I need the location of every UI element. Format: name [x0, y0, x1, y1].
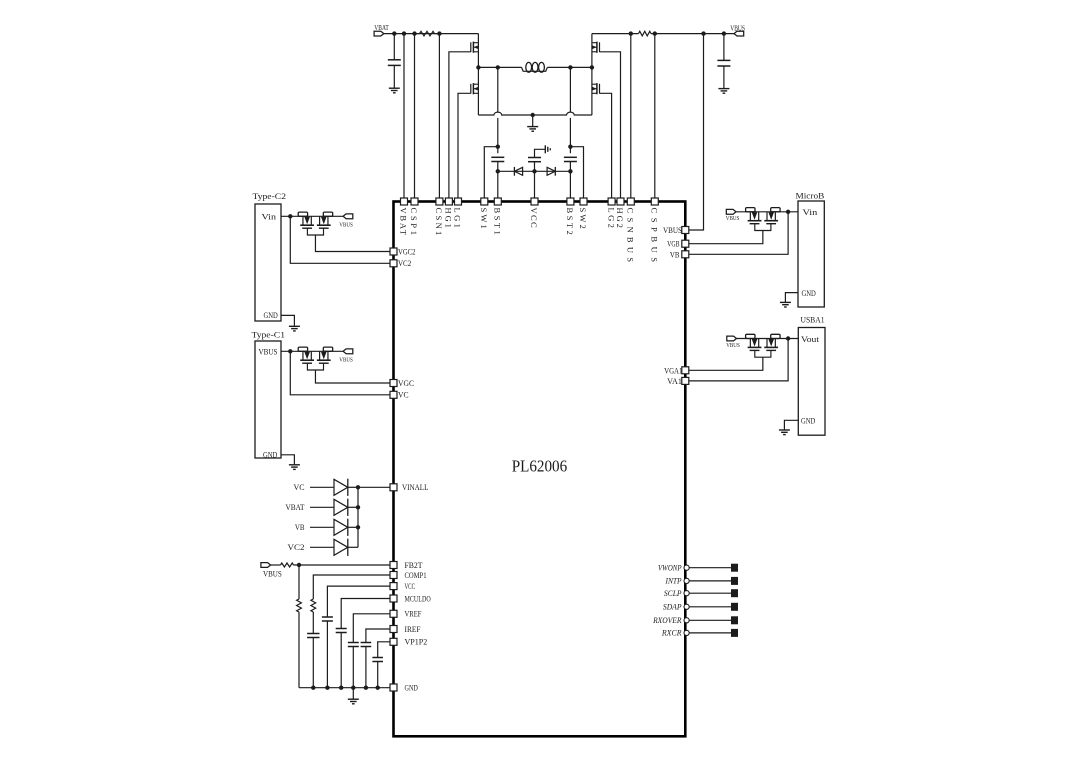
svg-text:VBAT: VBAT	[286, 503, 305, 512]
svg-text:IREF: IREF	[405, 625, 422, 634]
svg-text:VBUS: VBUS	[730, 24, 745, 32]
svg-text:Vin: Vin	[262, 211, 277, 221]
svg-text:VINALL: VINALL	[402, 483, 429, 492]
svg-text:MicroB: MicroB	[796, 190, 825, 200]
svg-text:SW1: SW1	[479, 208, 489, 229]
svg-text:HG1: HG1	[444, 208, 454, 228]
svg-text:VCC: VCC	[529, 208, 539, 229]
svg-text:VBUS: VBUS	[339, 222, 353, 229]
svg-text:VBAT: VBAT	[374, 24, 389, 32]
svg-text:VWONP: VWONP	[658, 563, 682, 572]
svg-text:Type-C1: Type-C1	[252, 330, 286, 340]
svg-text:VCC: VCC	[405, 582, 416, 591]
svg-text:FB2T: FB2T	[405, 561, 423, 570]
svg-text:INTP: INTP	[665, 577, 682, 586]
svg-text:USBA1: USBA1	[801, 314, 825, 324]
svg-text:RXCR: RXCR	[661, 629, 682, 638]
svg-text:VGA1: VGA1	[664, 366, 682, 375]
svg-text:GND: GND	[263, 450, 277, 460]
svg-text:Vout: Vout	[801, 334, 820, 344]
svg-text:VC: VC	[398, 391, 409, 400]
svg-text:VBUS: VBUS	[263, 569, 282, 578]
svg-text:HG2: HG2	[615, 208, 625, 228]
svg-text:VB: VB	[295, 523, 305, 532]
svg-text:VC2: VC2	[398, 259, 411, 268]
svg-text:MCULDO: MCULDO	[405, 594, 431, 603]
svg-text:GND: GND	[801, 415, 815, 425]
svg-text:Type-C2: Type-C2	[253, 191, 287, 201]
svg-text:VA1: VA1	[667, 377, 682, 386]
svg-text:VGC: VGC	[398, 379, 414, 388]
svg-text:GND: GND	[264, 310, 278, 320]
svg-text:RXOVER: RXOVER	[652, 616, 681, 625]
svg-text:SCLP: SCLP	[664, 589, 682, 598]
svg-text:LG2: LG2	[606, 208, 616, 228]
svg-text:SDAP: SDAP	[663, 602, 682, 611]
svg-text:VC2: VC2	[288, 543, 305, 552]
svg-text:VBUS: VBUS	[259, 346, 278, 356]
svg-text:VB: VB	[670, 250, 680, 259]
svg-text:COMP1: COMP1	[405, 571, 427, 580]
svg-text:VGB: VGB	[667, 240, 679, 249]
svg-text:VREF: VREF	[405, 610, 422, 619]
svg-text:GND: GND	[802, 288, 816, 298]
svg-text:VBUS: VBUS	[339, 357, 353, 364]
svg-text:SW2: SW2	[578, 208, 588, 229]
svg-text:LG1: LG1	[453, 208, 463, 228]
svg-text:Vin: Vin	[803, 207, 819, 217]
svg-text:VP1P2: VP1P2	[405, 638, 428, 647]
svg-text:VGC2: VGC2	[398, 247, 416, 256]
svg-text:PL62006: PL62006	[512, 456, 568, 475]
svg-text:VBUS: VBUS	[726, 342, 740, 349]
svg-text:VC: VC	[294, 483, 305, 492]
svg-text:VBUS: VBUS	[663, 226, 682, 235]
svg-text:VBUS: VBUS	[726, 215, 740, 222]
svg-text:GND: GND	[405, 683, 419, 692]
